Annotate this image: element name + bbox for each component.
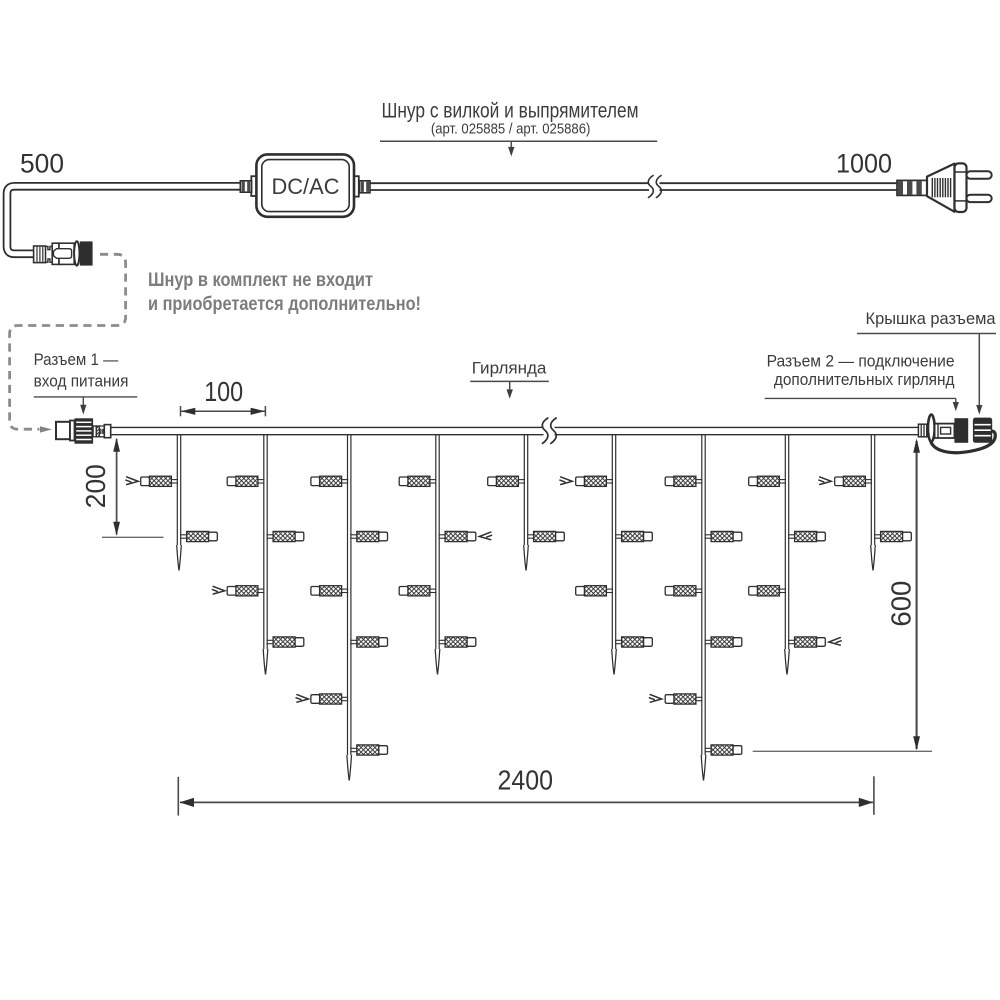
- svg-text:Гирлянда: Гирлянда: [472, 359, 547, 377]
- svg-text:Шнур в комплект не входит: Шнур в комплект не входит: [148, 270, 373, 291]
- svg-text:Шнур с вилкой и выпрямителем: Шнур с вилкой и выпрямителем: [382, 99, 639, 122]
- svg-text:вход питания: вход питания: [34, 373, 129, 391]
- svg-text:Крышка разъема: Крышка разъема: [866, 310, 997, 328]
- svg-text:и приобретается дополнительно!: и приобретается дополнительно!: [148, 294, 421, 315]
- svg-text:DC/AC: DC/AC: [272, 174, 340, 199]
- svg-text:500: 500: [20, 148, 64, 178]
- svg-text:1000: 1000: [836, 149, 892, 179]
- svg-text:2400: 2400: [498, 764, 554, 795]
- svg-text:Разъем 1 —: Разъем 1 —: [34, 351, 119, 369]
- svg-text:100: 100: [204, 376, 243, 407]
- svg-text:200: 200: [80, 464, 111, 508]
- svg-text:дополнительных гирлянд: дополнительных гирлянд: [774, 370, 955, 389]
- svg-text:600: 600: [885, 581, 916, 627]
- svg-text:(арт. 025885 / арт. 025886): (арт. 025885 / арт. 025886): [431, 122, 591, 138]
- svg-text:Разъем 2 — подключение: Разъем 2 — подключение: [767, 352, 955, 370]
